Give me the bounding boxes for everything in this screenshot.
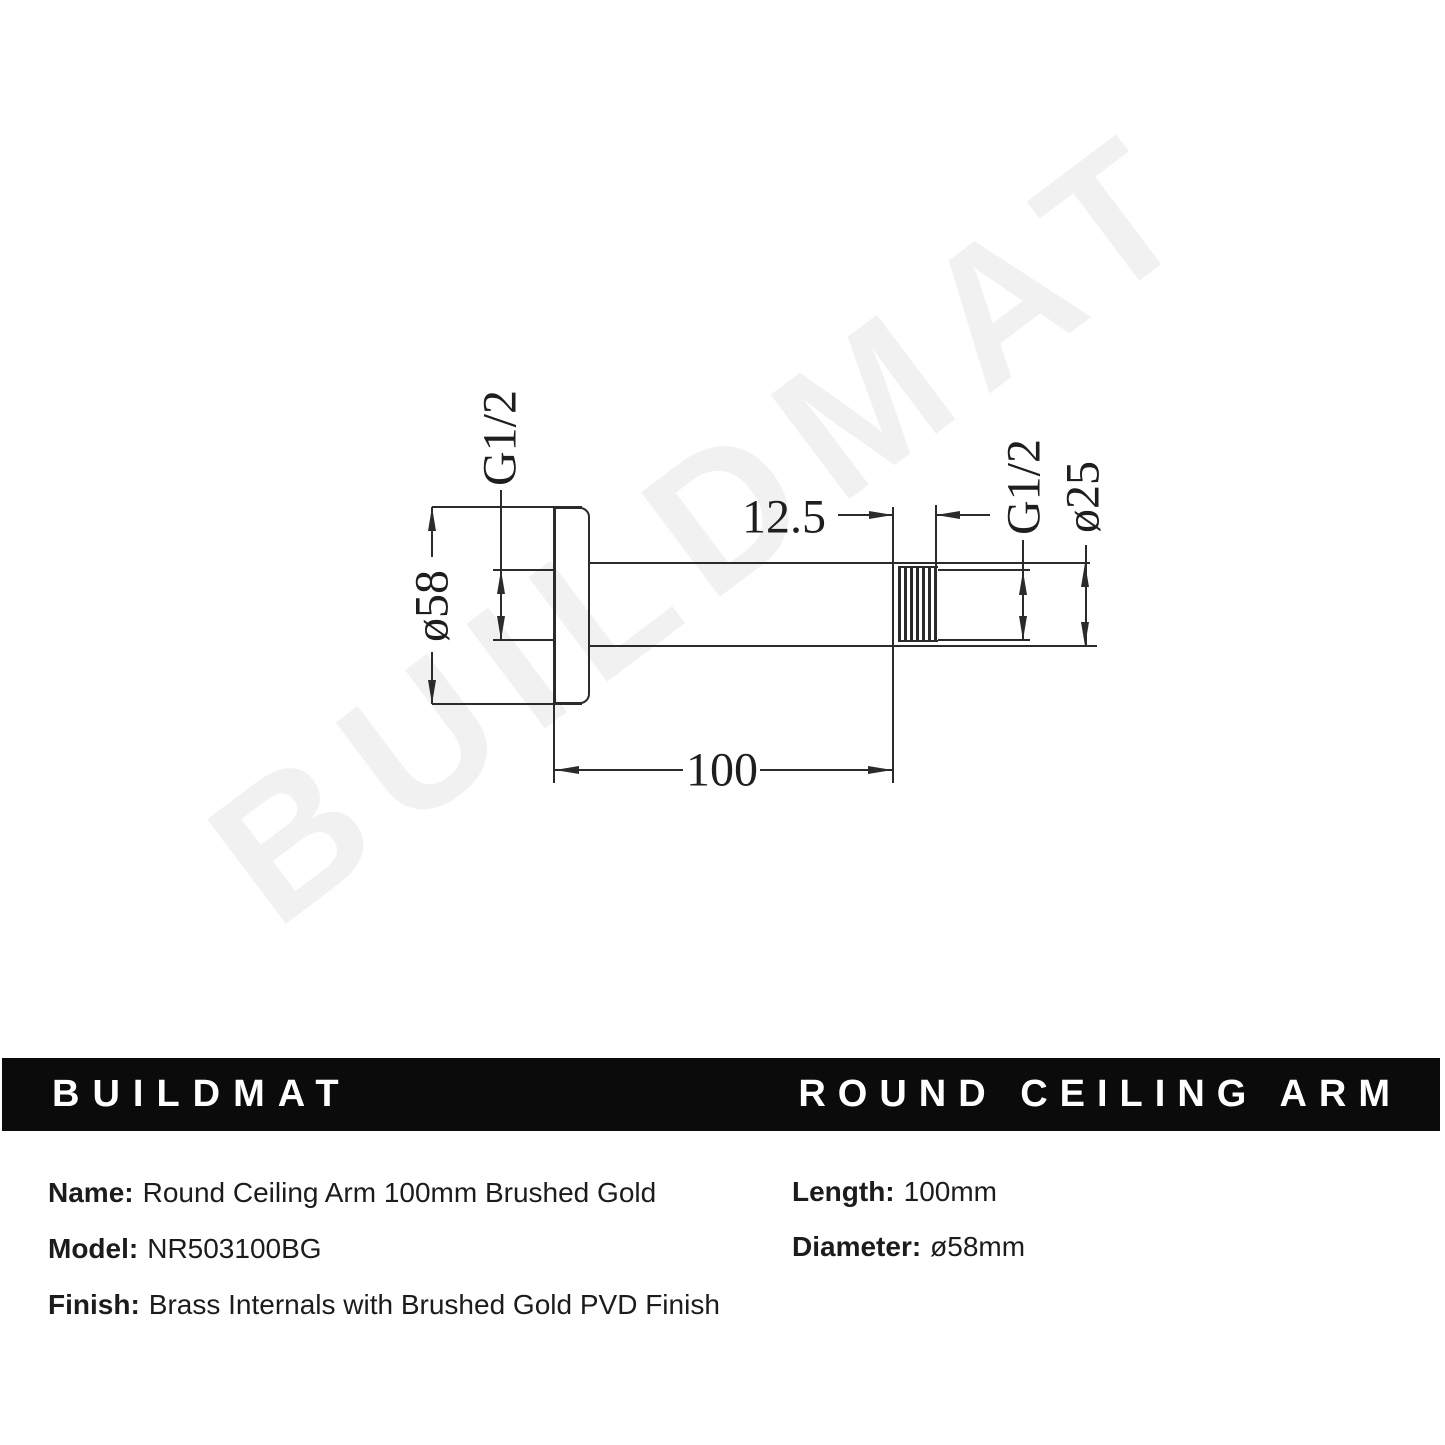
- thread-ridge: [934, 567, 937, 642]
- thread-inner-top-extension: [938, 569, 1030, 571]
- thread-end-extension-line: [935, 505, 937, 567]
- dim125-arrow-left: [936, 511, 960, 519]
- thread-ridge: [916, 567, 919, 642]
- spec-sheet-page: BUILDMAT ø58 G1/2: [0, 0, 1445, 1445]
- thread-ridge: [922, 567, 925, 642]
- spec-finish-value: Brass Internals with Brushed Gold PVD Fi…: [149, 1289, 720, 1320]
- spec-length-value: 100mm: [904, 1176, 997, 1207]
- d58-arrow-down: [428, 680, 436, 704]
- tube-bottom-line: [588, 645, 1097, 647]
- thread-hole-bottom-line: [493, 639, 554, 641]
- thread-ridge: [910, 567, 913, 642]
- flange-thread-label: G1/2: [473, 390, 528, 486]
- thread-ridge: [928, 567, 931, 642]
- flange-top-extension: [432, 506, 582, 508]
- product-title: ROUND CEILING ARM: [798, 1073, 1402, 1116]
- spec-model-label: Model:: [48, 1233, 138, 1264]
- flange-face-line: [553, 507, 555, 783]
- outlet-thread-label: G1/2: [997, 439, 1052, 535]
- d58-arrow-up: [428, 507, 436, 531]
- dim100-arrow-right: [868, 766, 892, 774]
- brand-title: BUILDMAT: [52, 1073, 352, 1116]
- spec-finish: Finish:Brass Internals with Brushed Gold…: [48, 1289, 720, 1321]
- title-banner: BUILDMAT ROUND CEILING ARM: [2, 1058, 1440, 1131]
- spec-diameter-label: Diameter:: [792, 1231, 921, 1262]
- thread-ridge: [904, 567, 907, 642]
- spec-length-label: Length:: [792, 1176, 895, 1207]
- flange-thread-arrow-up: [497, 570, 505, 594]
- arm-diameter-label: ø25: [1056, 461, 1111, 533]
- thread-ridge: [898, 567, 901, 642]
- spec-name-value: Round Ceiling Arm 100mm Brushed Gold: [143, 1177, 657, 1208]
- dim100-arrow-left: [555, 766, 579, 774]
- spec-model: Model:NR503100BG: [48, 1233, 322, 1265]
- flange-thread-arrow-down: [497, 616, 505, 640]
- dim125-arrow-right: [869, 511, 893, 519]
- outlet-thread-arrow-down: [1019, 616, 1027, 640]
- thread-start-extension-line: [892, 507, 894, 783]
- arm-diameter-arrow-up: [1081, 563, 1089, 587]
- flange-outline: [554, 507, 590, 704]
- spec-finish-label: Finish:: [48, 1289, 140, 1320]
- flange-bottom-extension: [432, 703, 582, 705]
- thread-length-label: 12.5: [742, 490, 826, 545]
- arm-length-label: 100: [686, 743, 758, 798]
- flange-diameter-label: ø58: [405, 570, 460, 642]
- spec-name: Name:Round Ceiling Arm 100mm Brushed Gol…: [48, 1177, 656, 1209]
- spec-diameter-value: ø58mm: [930, 1231, 1025, 1262]
- tube-top-line: [588, 562, 1090, 564]
- thread-inner-bottom-extension: [938, 639, 1030, 641]
- thread-hole-top-line: [493, 569, 554, 571]
- spec-name-label: Name:: [48, 1177, 134, 1208]
- spec-model-value: NR503100BG: [147, 1233, 321, 1264]
- outlet-thread-arrow-up: [1019, 571, 1027, 595]
- technical-drawing: ø58 G1/2 12.5 G1/2: [0, 0, 1445, 1445]
- spec-length: Length:100mm: [792, 1176, 997, 1208]
- arm-diameter-arrow-down: [1081, 622, 1089, 646]
- spec-diameter: Diameter:ø58mm: [792, 1231, 1025, 1263]
